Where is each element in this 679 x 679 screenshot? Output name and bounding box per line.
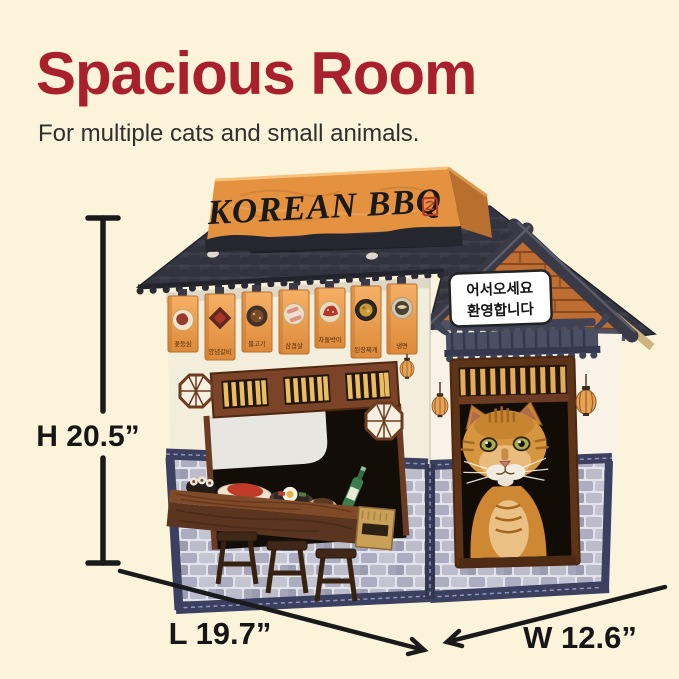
height-dimension-label: H 20.5” <box>6 420 170 454</box>
menu-banner: 양념갈비 <box>205 287 235 360</box>
product-infographic: KOREAN BBQ <box>0 0 679 679</box>
banner-label: 불고기 <box>248 339 265 348</box>
roof-sign: KOREAN BBQ <box>205 168 492 253</box>
welcome-sign-line2: 환영합니다 <box>467 300 535 320</box>
banner-label: 꽃등심 <box>174 339 191 348</box>
banner-label: 냉면 <box>396 341 408 350</box>
menu-banner: 차돌박이 <box>315 281 345 348</box>
welcome-sign: 어서오세요 환영합니다 <box>449 270 552 326</box>
page-subtitle: For multiple cats and small animals. <box>38 120 419 149</box>
banner-label: 양념갈비 <box>208 347 231 356</box>
door <box>450 356 579 567</box>
cat-eye <box>480 438 496 451</box>
length-dimension-label: L 19.7” <box>138 616 302 652</box>
menu-banner: 불고기 <box>242 285 272 352</box>
cat-eye <box>513 437 529 450</box>
menu-banner: 냉면 <box>387 277 417 354</box>
banner-label: 차돌박이 <box>318 335 341 344</box>
window-reflection <box>208 410 329 469</box>
counter-open-end <box>356 507 395 550</box>
menu-banner: 삼겹살 <box>279 283 309 354</box>
height-dimension-line <box>88 218 118 563</box>
banner-label: 삼겹살 <box>285 341 303 350</box>
menu-banner: 꽃등심 <box>168 289 198 352</box>
menu-banner: 된장찌개 <box>351 279 381 358</box>
welcome-sign-line1: 어서오세요 <box>466 280 533 299</box>
banner-label: 된장찌개 <box>354 345 377 354</box>
octagon-window <box>180 375 212 407</box>
octagon-window <box>366 403 402 439</box>
page-title: Spacious Room <box>36 44 476 104</box>
width-dimension-label: W 12.6” <box>498 620 662 656</box>
